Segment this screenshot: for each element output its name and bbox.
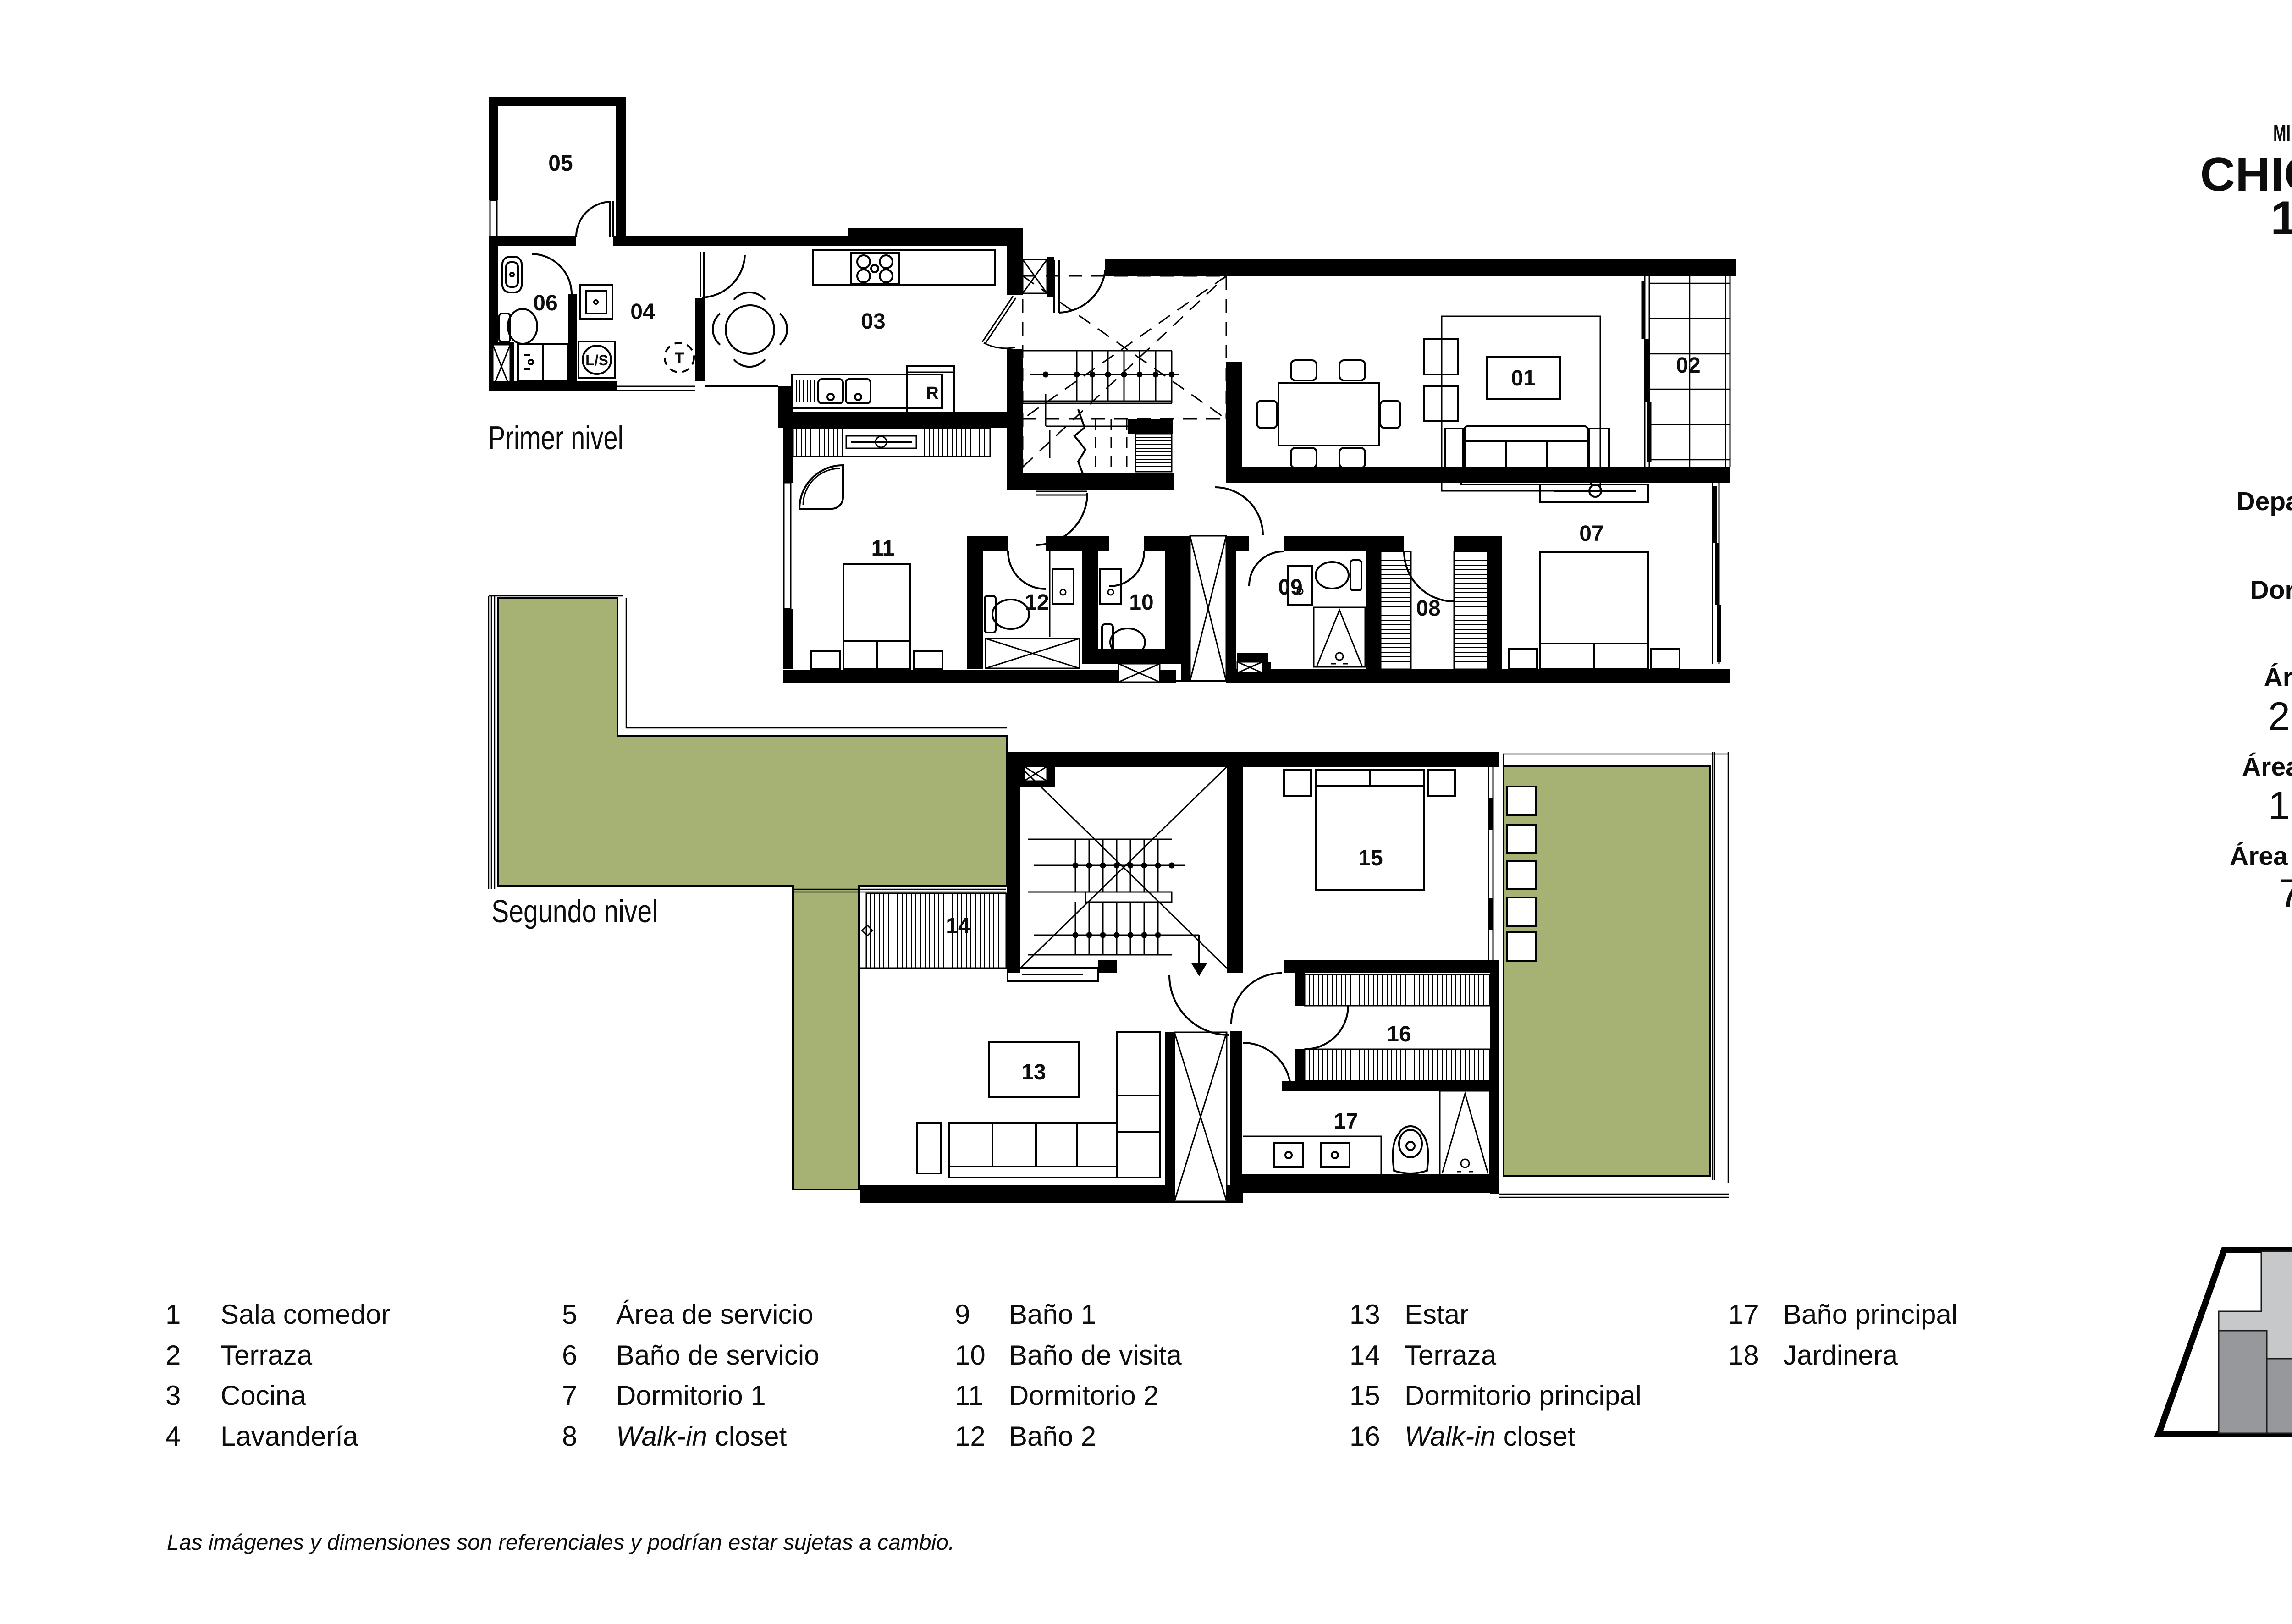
svg-text:Departamento: Departamento: [2236, 487, 2292, 516]
svg-text:Baño de servicio: Baño de servicio: [616, 1340, 820, 1371]
svg-text:Sala comedor: Sala comedor: [220, 1299, 390, 1330]
svg-text:8: 8: [562, 1421, 577, 1452]
svg-text:Área techada: Área techada: [2242, 752, 2292, 782]
svg-text:15: 15: [1350, 1380, 1380, 1411]
svg-text:255m2: 255m2: [2268, 694, 2292, 738]
svg-text:Walk-in closet: Walk-in closet: [616, 1421, 787, 1452]
svg-text:1033: 1033: [2270, 192, 2292, 245]
svg-text:Área sin techar: Área sin techar: [2230, 842, 2292, 871]
svg-text:Dormitorio 1: Dormitorio 1: [616, 1380, 766, 1411]
svg-text:09: 09: [1278, 575, 1302, 600]
svg-text:05: 05: [548, 151, 573, 176]
svg-text:MIRAFLORES: MIRAFLORES: [2273, 120, 2292, 146]
svg-text:2: 2: [165, 1340, 181, 1371]
svg-text:14: 14: [1350, 1340, 1380, 1371]
svg-text:Baño 1: Baño 1: [1009, 1299, 1096, 1330]
svg-text:183m2: 183m2: [2268, 783, 2292, 828]
svg-text:14: 14: [946, 914, 970, 938]
svg-text:Baño de visita: Baño de visita: [1009, 1340, 1182, 1371]
svg-text:17: 17: [1333, 1109, 1358, 1134]
svg-text:17: 17: [1728, 1299, 1759, 1330]
svg-text:T: T: [675, 350, 684, 367]
svg-text:72m2: 72m2: [2279, 871, 2292, 915]
svg-text:12: 12: [955, 1421, 986, 1452]
svg-text:01: 01: [1511, 366, 1535, 391]
svg-text:5: 5: [562, 1299, 577, 1330]
svg-text:Segundo nivel: Segundo nivel: [491, 893, 658, 929]
svg-text:Las imágenes y dimensiones son: Las imágenes y dimensiones son referenci…: [167, 1530, 954, 1555]
svg-text:11: 11: [871, 536, 895, 561]
svg-text:06: 06: [533, 291, 557, 315]
svg-text:03: 03: [861, 309, 885, 334]
svg-text:Dormitorios: Dormitorios: [2250, 575, 2292, 605]
svg-text:3: 3: [165, 1380, 181, 1411]
svg-text:7: 7: [562, 1380, 577, 1411]
svg-text:R: R: [926, 384, 938, 403]
svg-text:Área total: Área total: [2264, 663, 2292, 692]
svg-text:Primer nivel: Primer nivel: [488, 420, 623, 457]
svg-text:11: 11: [955, 1380, 983, 1411]
svg-text:6: 6: [562, 1340, 577, 1371]
svg-text:Baño principal: Baño principal: [1783, 1299, 1957, 1330]
svg-text:10: 10: [1129, 590, 1153, 615]
svg-text:02: 02: [1676, 353, 1700, 378]
svg-text:07: 07: [1579, 522, 1603, 546]
svg-text:15: 15: [1358, 846, 1383, 870]
svg-text:08: 08: [1416, 596, 1440, 621]
svg-text:Terraza: Terraza: [1405, 1340, 1497, 1371]
svg-text:Cocina: Cocina: [220, 1380, 306, 1411]
svg-text:Walk-in closet: Walk-in closet: [1405, 1421, 1576, 1452]
svg-text:16: 16: [1350, 1421, 1380, 1452]
svg-text:13: 13: [1350, 1299, 1380, 1330]
svg-text:Lavandería: Lavandería: [220, 1421, 358, 1452]
svg-text:04: 04: [630, 300, 655, 324]
svg-text:Terraza: Terraza: [220, 1340, 313, 1371]
svg-text:Área de servicio: Área de servicio: [616, 1299, 813, 1330]
svg-text:12: 12: [1025, 590, 1049, 615]
svg-text:9: 9: [955, 1299, 970, 1330]
svg-text:Dormitorio principal: Dormitorio principal: [1405, 1380, 1642, 1411]
svg-text:Jardinera: Jardinera: [1783, 1340, 1898, 1371]
svg-text:16: 16: [1387, 1022, 1411, 1046]
svg-text:18: 18: [1728, 1340, 1759, 1371]
svg-text:1: 1: [165, 1299, 181, 1330]
svg-text:L/S: L/S: [585, 352, 608, 369]
svg-text:10: 10: [955, 1340, 986, 1371]
svg-text:Baño 2: Baño 2: [1009, 1421, 1096, 1452]
svg-text:Dormitorio 2: Dormitorio 2: [1009, 1380, 1159, 1411]
svg-text:4: 4: [165, 1421, 181, 1452]
svg-text:Estar: Estar: [1405, 1299, 1469, 1330]
svg-text:13: 13: [1021, 1060, 1046, 1085]
